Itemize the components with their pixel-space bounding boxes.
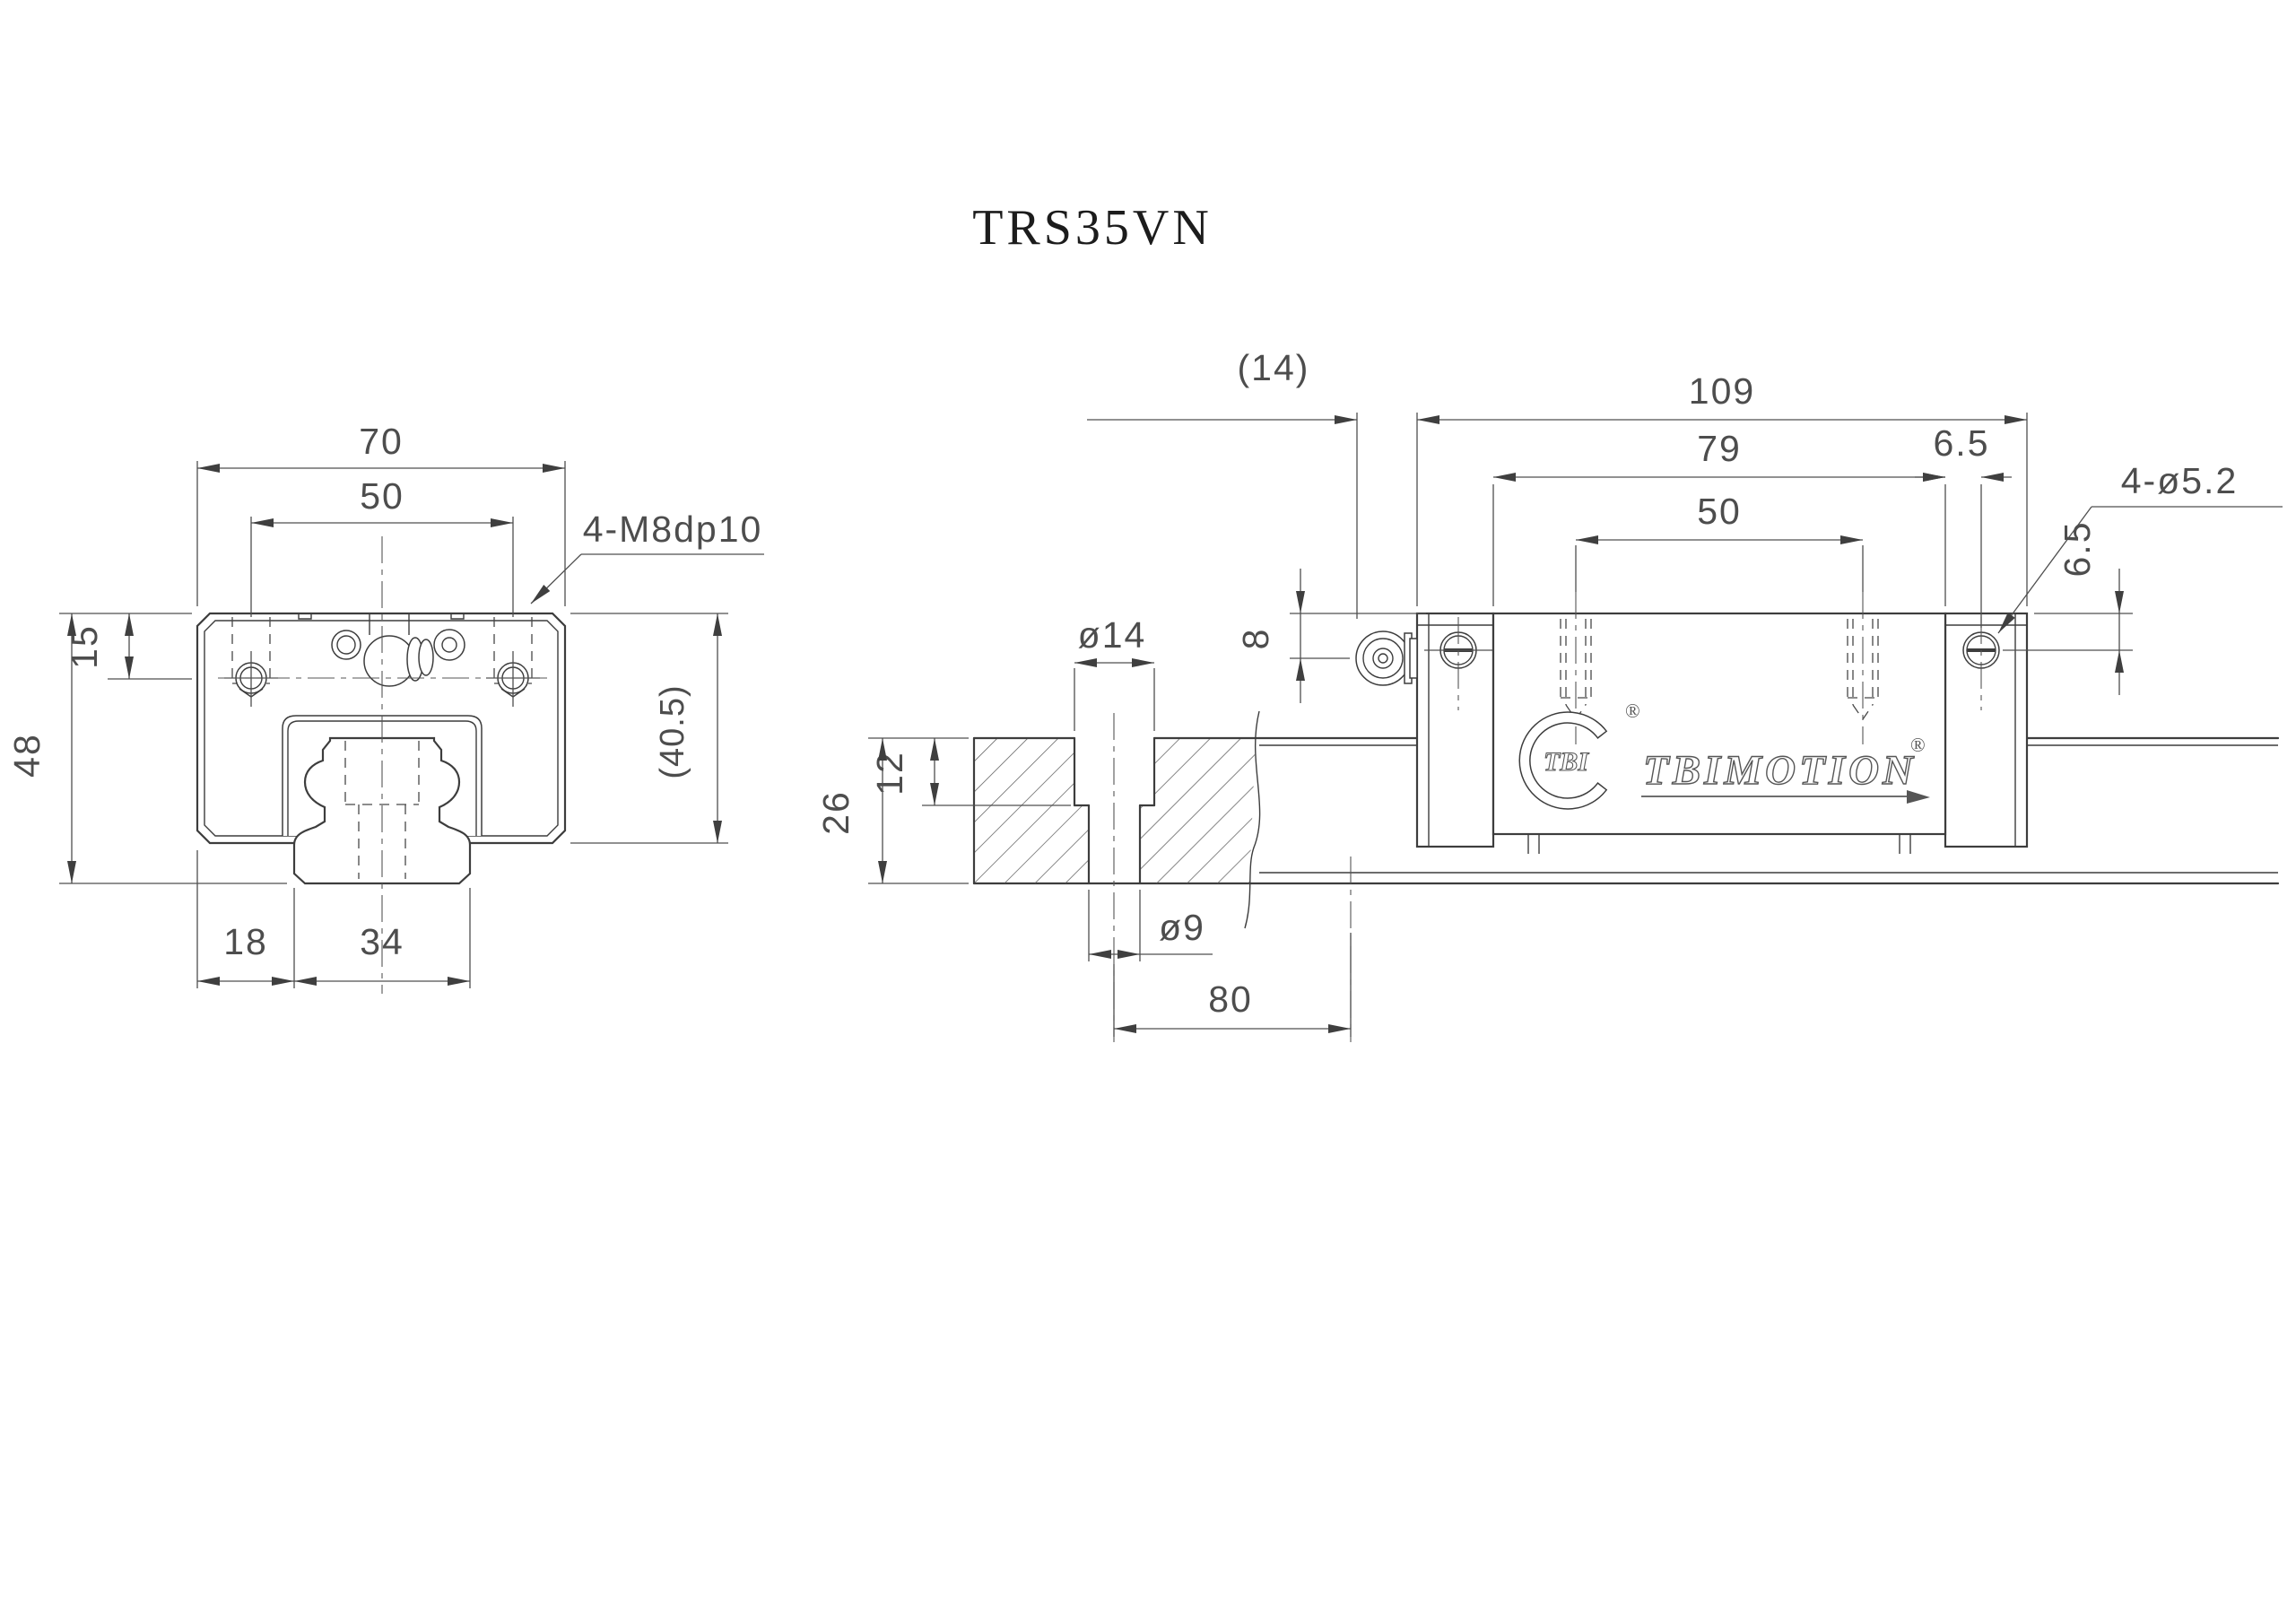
dim-15-label: 15 [64, 624, 105, 669]
brand-text: TBIMOTION [1643, 747, 1917, 794]
dim-80-label: 80 [1208, 978, 1253, 1020]
registered-mark-logo: ® [1625, 700, 1640, 722]
drawing-canvas: TRS35VN [0, 0, 2296, 1600]
drawing-title: TRS35VN [972, 200, 1213, 256]
hatch-left [974, 738, 1089, 883]
dim-50-side-label: 50 [1697, 491, 1742, 532]
tbi-monogram: TBI [1544, 747, 1589, 777]
dim-40-5-label: (40.5) [654, 684, 691, 778]
dim-6-5-vert-label: 6.5 [2057, 521, 2098, 578]
cad-drawing: TRS35VN [0, 0, 2296, 1600]
nipple-tip-outer [434, 630, 465, 660]
dim-12-label: 12 [869, 751, 910, 796]
cap-hole-callout-label: 4-ø5.2 [2121, 460, 2239, 501]
dim-70-label: 70 [359, 421, 404, 462]
dim-109-label: 109 [1689, 370, 1755, 412]
dim-18-label: 18 [223, 921, 268, 962]
dim-o14-label: ø14 [1078, 614, 1147, 656]
dim-26-label: 26 [815, 790, 857, 835]
dim-79-label: 79 [1697, 428, 1742, 469]
block-side-view: TBI ® TBIMOTION ® [1356, 592, 2027, 854]
grease-nipple-side [1356, 631, 1417, 685]
registered-mark-brand: ® [1910, 734, 1926, 756]
grease-port-outer [332, 630, 361, 659]
dim-6-5-top-label: 6.5 [1934, 422, 1990, 464]
dim-48-label: 48 [6, 733, 48, 778]
dim-o9-label: ø9 [1159, 907, 1205, 948]
dim-50-front-label: 50 [360, 475, 404, 517]
nipple-cone-2 [419, 639, 433, 675]
dim-34-label: 34 [360, 921, 404, 962]
hatch-right [1140, 738, 1256, 883]
dim-14-label: (14) [1238, 347, 1310, 388]
thread-callout-label: 4-M8dp10 [583, 509, 763, 550]
dim-8-label: 8 [1235, 628, 1276, 650]
